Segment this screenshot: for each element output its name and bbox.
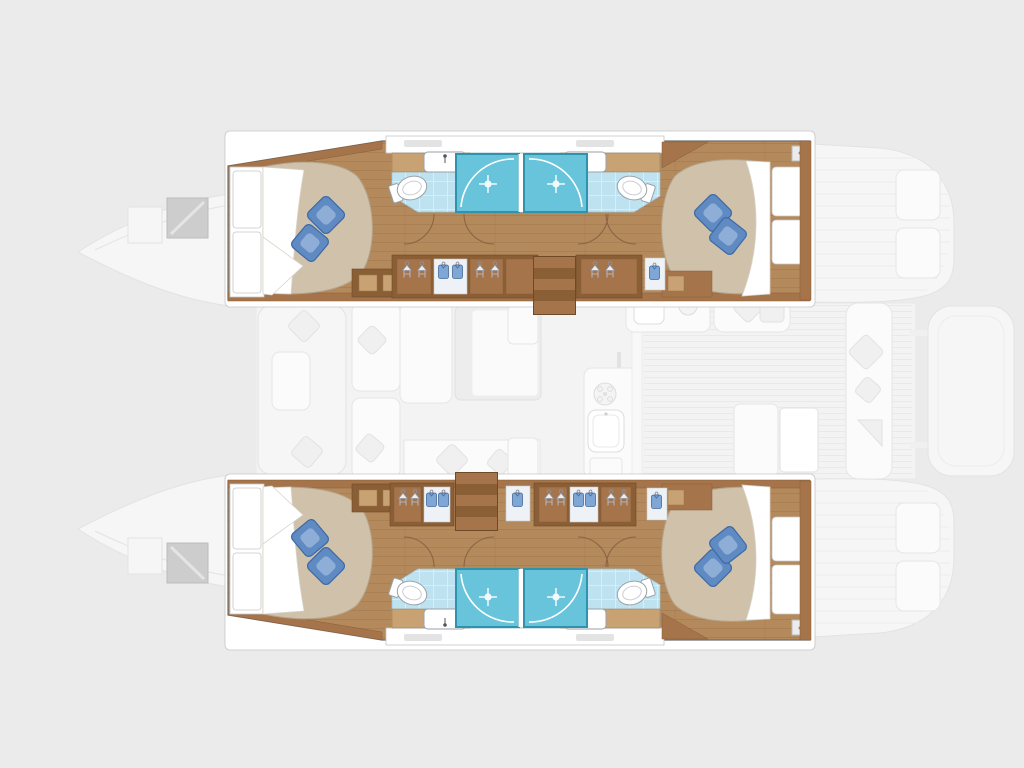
saloon-sofa bbox=[400, 303, 452, 403]
floor-plan-canvas bbox=[0, 0, 1024, 768]
platform-arm bbox=[910, 442, 928, 448]
galley-sink bbox=[588, 410, 624, 452]
wardrobes bbox=[390, 483, 667, 526]
saloon-and-decks-faint bbox=[256, 286, 1014, 479]
forward-cockpit-table bbox=[272, 352, 310, 410]
swim-platform bbox=[910, 306, 1014, 476]
wardrobes bbox=[392, 255, 665, 298]
galley-appliance bbox=[590, 458, 622, 476]
cockpit-table bbox=[780, 408, 818, 472]
cockpit-bench-side bbox=[734, 404, 778, 476]
forward-cockpit bbox=[258, 305, 346, 475]
saloon-seat bbox=[508, 438, 538, 478]
hull-port bbox=[78, 131, 954, 315]
saloon-seating bbox=[352, 303, 541, 478]
floor-plan-page bbox=[0, 0, 1024, 768]
platform-arm bbox=[910, 330, 928, 336]
burner-icon bbox=[594, 383, 616, 405]
hull-starboard bbox=[78, 472, 954, 650]
